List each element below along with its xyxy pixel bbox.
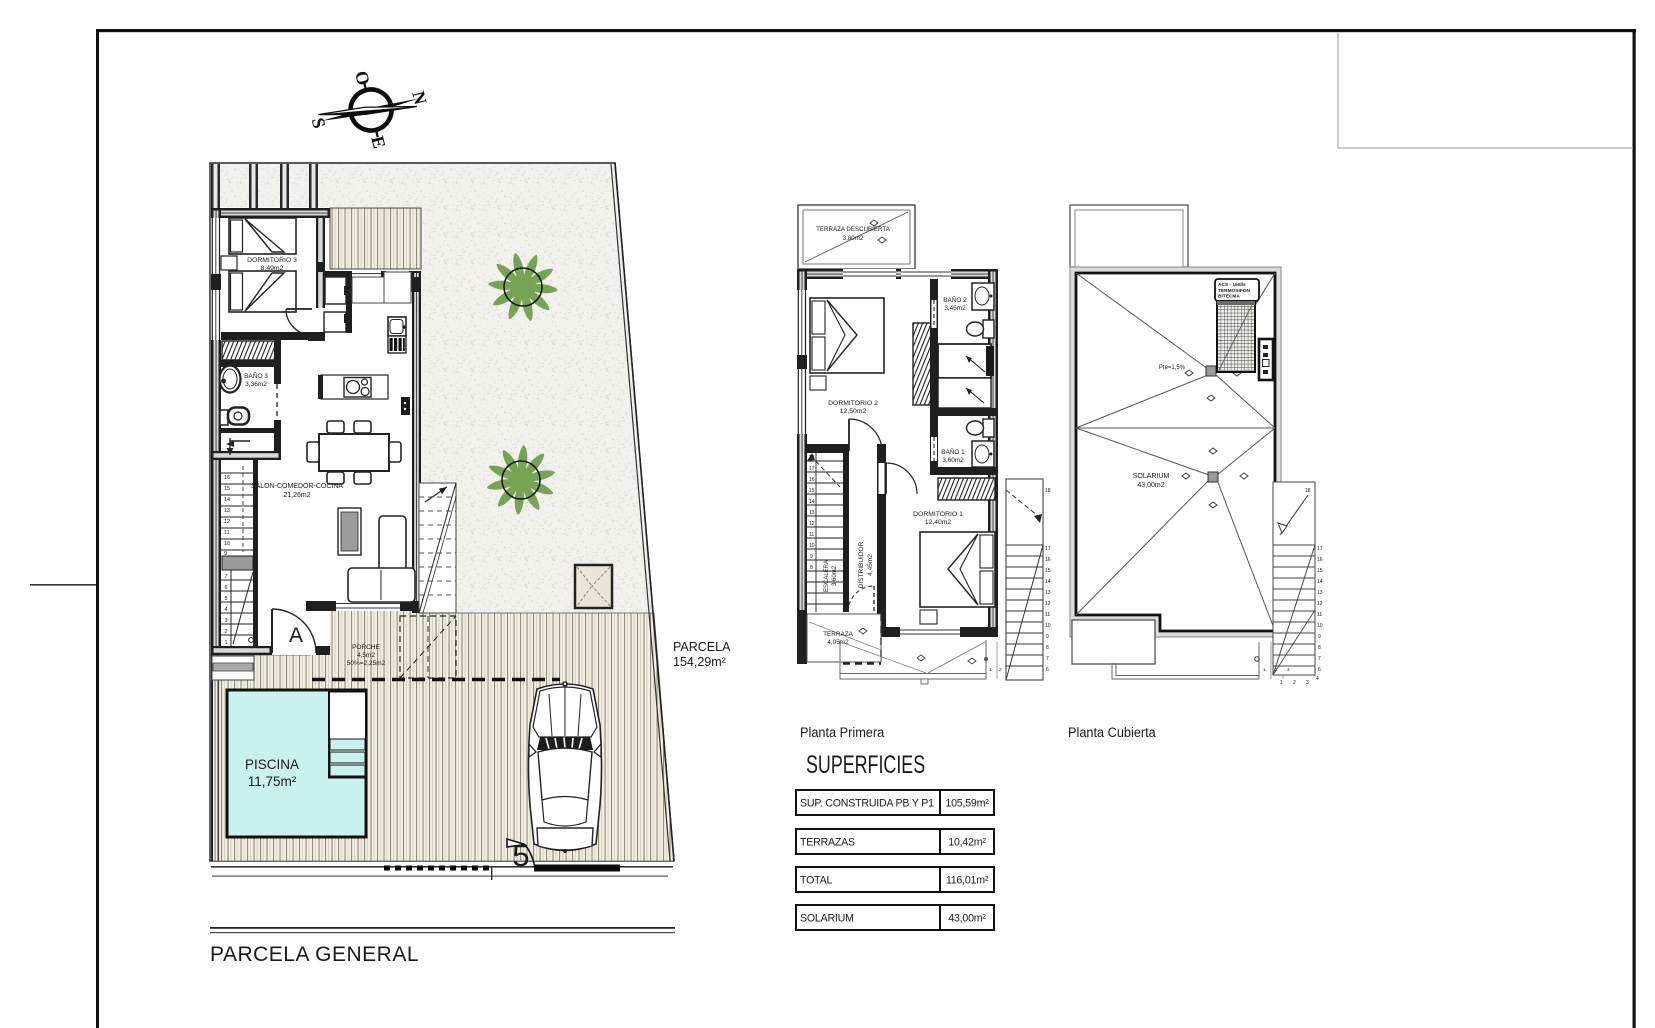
svg-text:15: 15 bbox=[1317, 568, 1323, 574]
svg-text:TERRAZAS: TERRAZAS bbox=[800, 837, 855, 849]
svg-text:SALON-COMEDOR-COCINA: SALON-COMEDOR-COCINA bbox=[251, 483, 344, 490]
svg-text:ESCALERA: ESCALERA bbox=[824, 560, 830, 592]
svg-text:4: 4 bbox=[225, 607, 228, 613]
svg-text:9: 9 bbox=[1318, 634, 1321, 640]
svg-text:4,5m2: 4,5m2 bbox=[357, 652, 375, 659]
svg-text:SOLARIUM: SOLARIUM bbox=[1133, 473, 1170, 480]
svg-text:105,59m²: 105,59m² bbox=[945, 798, 989, 810]
svg-text:Pte=1,5%: Pte=1,5% bbox=[1159, 365, 1186, 371]
svg-text:16: 16 bbox=[1045, 557, 1051, 563]
svg-text:1: 1 bbox=[1280, 680, 1283, 686]
svg-text:8: 8 bbox=[1046, 645, 1049, 651]
svg-text:BAÑO 2: BAÑO 2 bbox=[943, 295, 967, 304]
svg-text:3,60m2: 3,60m2 bbox=[832, 565, 838, 586]
svg-text:10,42m²: 10,42m² bbox=[948, 837, 986, 849]
svg-text:4,05m2: 4,05m2 bbox=[827, 639, 849, 646]
svg-text:3: 3 bbox=[1306, 680, 1309, 686]
svg-text:11,75m²: 11,75m² bbox=[248, 774, 297, 789]
svg-text:3,36m2: 3,36m2 bbox=[245, 381, 267, 388]
svg-text:6: 6 bbox=[225, 585, 228, 591]
svg-text:10: 10 bbox=[809, 543, 815, 549]
svg-text:5: 5 bbox=[512, 838, 529, 873]
svg-text:10: 10 bbox=[1045, 623, 1051, 629]
svg-text:8: 8 bbox=[1318, 645, 1321, 651]
svg-text:6: 6 bbox=[1318, 667, 1321, 673]
svg-text:BAÑO 3: BAÑO 3 bbox=[244, 371, 268, 380]
svg-text:12: 12 bbox=[224, 519, 230, 525]
svg-text:8,49m2: 8,49m2 bbox=[261, 265, 284, 272]
svg-text:SUP. CONSTRUIDA PB Y P1: SUP. CONSTRUIDA PB Y P1 bbox=[800, 798, 934, 810]
svg-text:3: 3 bbox=[225, 618, 228, 624]
svg-text:TOTAL: TOTAL bbox=[800, 875, 832, 887]
svg-text:12,50m2: 12,50m2 bbox=[840, 408, 867, 415]
svg-text:SUPERFICIES: SUPERFICIES bbox=[806, 750, 925, 779]
svg-text:TERMOSIFON: TERMOSIFON bbox=[1218, 288, 1251, 294]
svg-text:116,01m²: 116,01m² bbox=[946, 875, 989, 887]
svg-text:10: 10 bbox=[224, 541, 230, 547]
svg-text:1: 1 bbox=[225, 640, 228, 646]
svg-text:16: 16 bbox=[809, 477, 815, 483]
svg-text:8: 8 bbox=[810, 565, 813, 571]
svg-text:9: 9 bbox=[1046, 634, 1049, 640]
svg-text:17: 17 bbox=[1045, 546, 1051, 552]
svg-text:13: 13 bbox=[809, 510, 815, 516]
svg-text:12: 12 bbox=[1317, 601, 1323, 607]
svg-text:DORMITORIO 1: DORMITORIO 1 bbox=[913, 511, 963, 518]
svg-text:17: 17 bbox=[809, 466, 815, 472]
svg-text:5: 5 bbox=[225, 596, 228, 602]
svg-text:12: 12 bbox=[809, 521, 815, 527]
svg-text:2: 2 bbox=[1293, 680, 1296, 686]
svg-text:15: 15 bbox=[809, 488, 815, 494]
svg-text:A: A bbox=[289, 624, 303, 647]
svg-text:7: 7 bbox=[1318, 656, 1321, 662]
svg-text:17: 17 bbox=[1317, 546, 1323, 552]
svg-text:DORMITORIO 2: DORMITORIO 2 bbox=[828, 400, 878, 407]
svg-text:PORCHE: PORCHE bbox=[352, 644, 380, 651]
svg-text:13: 13 bbox=[1317, 590, 1323, 596]
svg-text:13: 13 bbox=[1045, 590, 1051, 596]
svg-text:43,00m2: 43,00m2 bbox=[1137, 482, 1164, 489]
svg-text:ACS - 150l/s: ACS - 150l/s bbox=[1218, 282, 1246, 288]
svg-text:13: 13 bbox=[224, 508, 230, 514]
svg-text:3,80m2: 3,80m2 bbox=[843, 235, 864, 242]
svg-text:12: 12 bbox=[1045, 601, 1051, 607]
svg-text:43,00m²: 43,00m² bbox=[948, 913, 986, 925]
svg-text:PARCELA GENERAL: PARCELA GENERAL bbox=[210, 943, 419, 966]
svg-text:6: 6 bbox=[1046, 667, 1049, 673]
svg-text:Planta Primera: Planta Primera bbox=[800, 724, 885, 740]
svg-text:12,40m2: 12,40m2 bbox=[925, 519, 952, 526]
svg-text:14: 14 bbox=[1045, 579, 1051, 585]
svg-text:18: 18 bbox=[1045, 488, 1051, 494]
svg-text:3,60m2: 3,60m2 bbox=[942, 457, 964, 464]
svg-text:TERRAZA: TERRAZA bbox=[823, 631, 854, 638]
svg-text:4: 4 bbox=[1316, 676, 1319, 682]
svg-text:BITECMA: BITECMA bbox=[1218, 294, 1240, 300]
svg-text:SOLARIUM: SOLARIUM bbox=[800, 913, 854, 925]
svg-text:14: 14 bbox=[1317, 579, 1323, 585]
svg-text:154,29m²: 154,29m² bbox=[673, 655, 726, 669]
svg-text:DISTRIBUIDOR: DISTRIBUIDOR bbox=[858, 541, 865, 588]
svg-text:9: 9 bbox=[224, 551, 227, 557]
svg-text:TERRAZA DESCUBIERTA: TERRAZA DESCUBIERTA bbox=[816, 226, 891, 233]
svg-text:11: 11 bbox=[224, 530, 230, 536]
svg-text:PISCINA: PISCINA bbox=[245, 757, 299, 772]
svg-text:11: 11 bbox=[1045, 612, 1050, 618]
svg-text:11: 11 bbox=[1317, 612, 1322, 618]
svg-text:16: 16 bbox=[224, 475, 230, 481]
svg-text:14: 14 bbox=[224, 497, 230, 503]
svg-text:10: 10 bbox=[1317, 623, 1323, 629]
svg-text:18: 18 bbox=[1305, 488, 1311, 494]
svg-text:9: 9 bbox=[810, 554, 813, 560]
svg-text:16: 16 bbox=[1317, 557, 1323, 563]
svg-text:DORMITORIO 3: DORMITORIO 3 bbox=[247, 257, 297, 264]
svg-text:3,45m2: 3,45m2 bbox=[944, 305, 966, 312]
svg-text:2: 2 bbox=[225, 629, 228, 635]
svg-text:15: 15 bbox=[224, 486, 230, 492]
svg-text:21,26m2: 21,26m2 bbox=[283, 492, 310, 499]
svg-text:Planta Cubierta: Planta Cubierta bbox=[1068, 724, 1156, 740]
svg-text:11: 11 bbox=[809, 532, 814, 538]
svg-text:14: 14 bbox=[809, 499, 815, 505]
svg-text:7: 7 bbox=[225, 574, 228, 580]
svg-text:PARCELA: PARCELA bbox=[673, 640, 731, 654]
svg-text:15: 15 bbox=[1045, 568, 1051, 574]
svg-text:BAÑO 1: BAÑO 1 bbox=[941, 447, 965, 456]
svg-text:50%=2,25m2: 50%=2,25m2 bbox=[347, 660, 386, 667]
svg-text:4,45m2: 4,45m2 bbox=[867, 554, 874, 576]
svg-text:7: 7 bbox=[1046, 656, 1049, 662]
